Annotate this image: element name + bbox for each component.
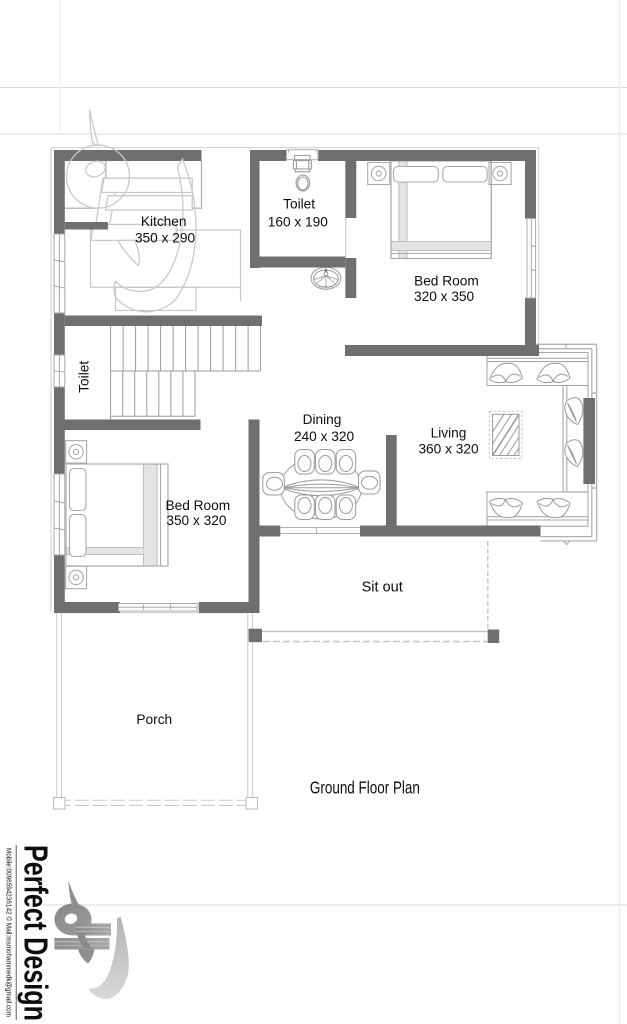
svg-text:Living: Living	[431, 426, 467, 441]
svg-text:Dining: Dining	[303, 412, 342, 427]
svg-text:Toilet: Toilet	[283, 197, 315, 212]
svg-text:Bed Room: Bed Room	[165, 498, 230, 513]
svg-text:Toilet: Toilet	[77, 361, 92, 393]
svg-text:320 x 350: 320 x 350	[414, 289, 475, 304]
svg-text:350 x 320: 350 x 320	[166, 513, 227, 528]
svg-text:240 x 320: 240 x 320	[294, 429, 355, 444]
svg-text:Porch: Porch	[136, 712, 172, 727]
svg-text:Kitchen: Kitchen	[141, 214, 187, 229]
svg-text:Perfect Design: Perfect Design	[18, 845, 55, 1021]
svg-text:Bed Room: Bed Room	[414, 274, 479, 289]
svg-text:Sit out: Sit out	[362, 579, 403, 595]
svg-text:160 x 190: 160 x 190	[268, 215, 329, 230]
svg-text:350 x 290: 350 x 290	[135, 230, 196, 245]
svg-text:Mobile:0096594236142 © Mail:ms: Mobile:0096594236142 © Mail:msmohammedk@…	[4, 848, 13, 1017]
svg-text:360 x 320: 360 x 320	[418, 442, 479, 457]
svg-text:Ground Floor Plan: Ground Floor Plan	[310, 777, 420, 797]
